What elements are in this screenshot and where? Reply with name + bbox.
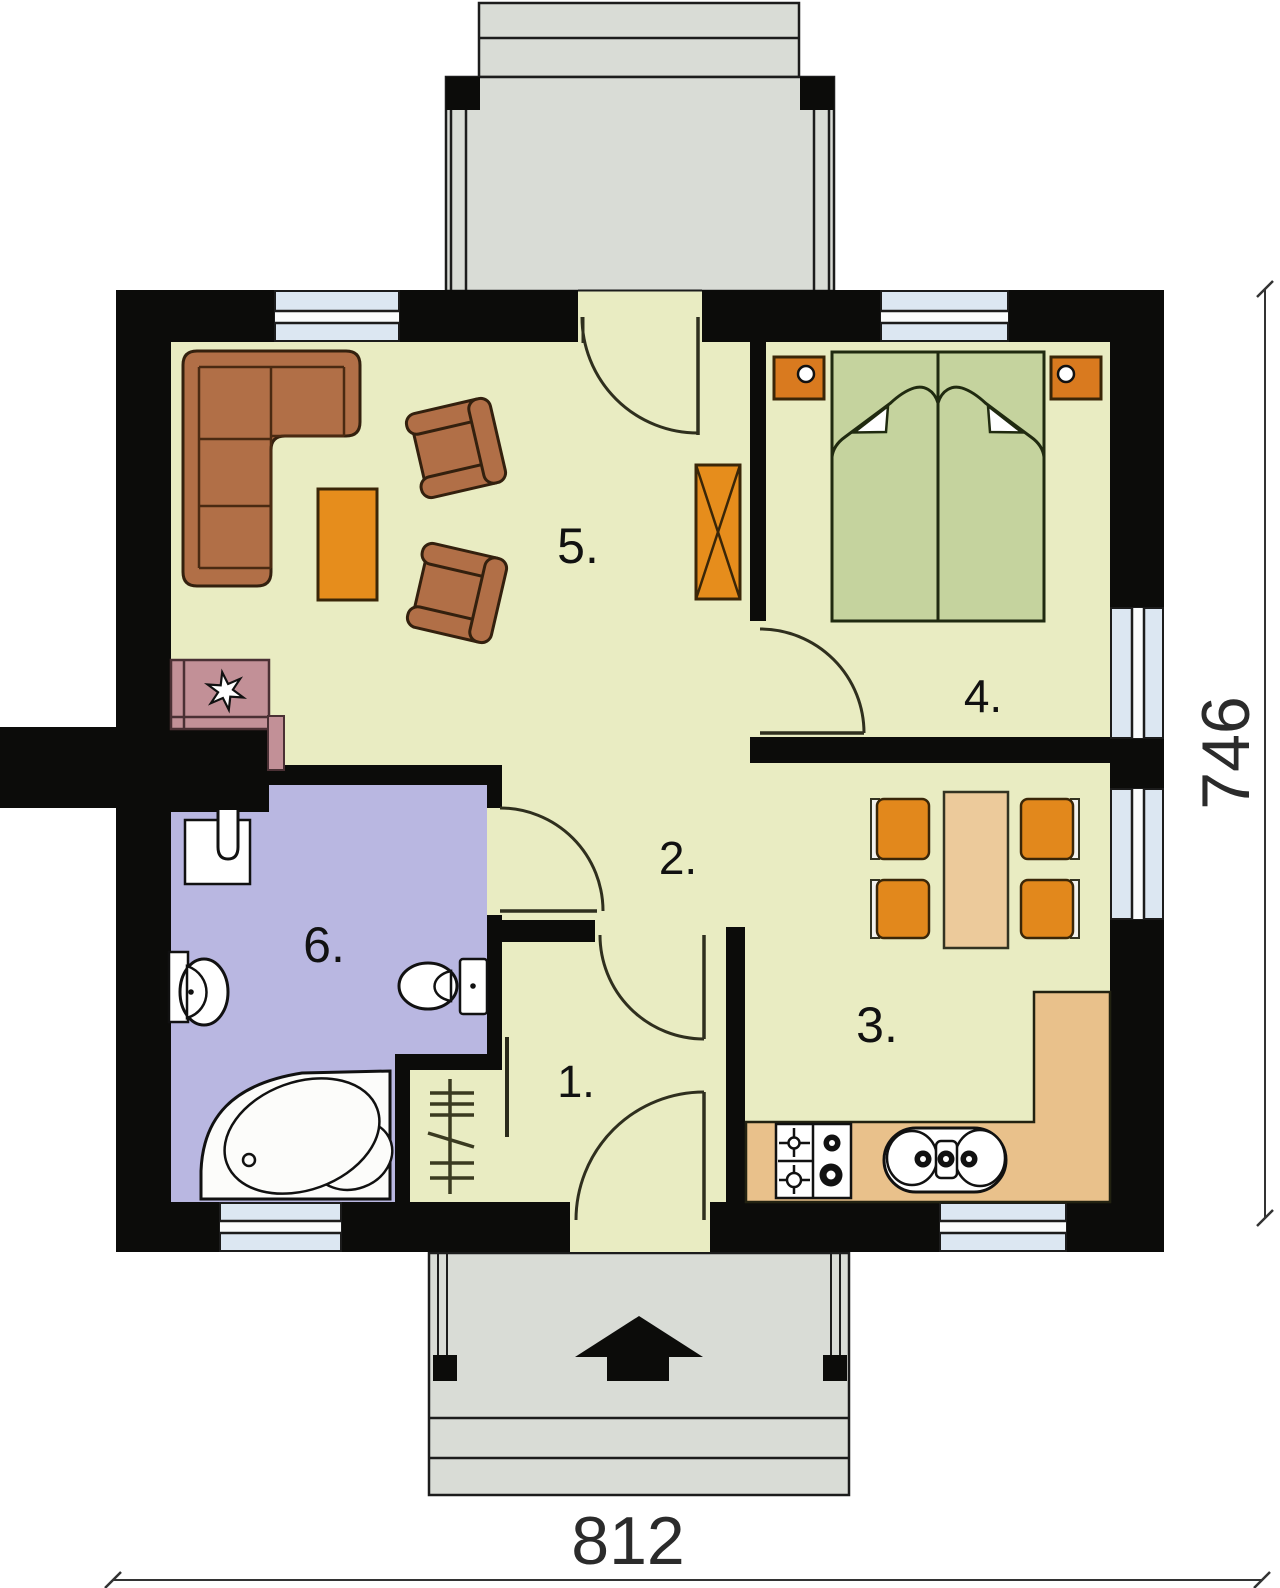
svg-text:1.: 1. xyxy=(557,1056,595,1107)
svg-text:746: 746 xyxy=(1188,696,1264,809)
svg-text:5.: 5. xyxy=(557,518,599,574)
svg-text:4.: 4. xyxy=(964,670,1002,722)
svg-text:2.: 2. xyxy=(659,832,697,884)
svg-text:6.: 6. xyxy=(303,917,345,973)
svg-text:812: 812 xyxy=(571,1503,684,1579)
svg-text:3.: 3. xyxy=(856,997,898,1053)
